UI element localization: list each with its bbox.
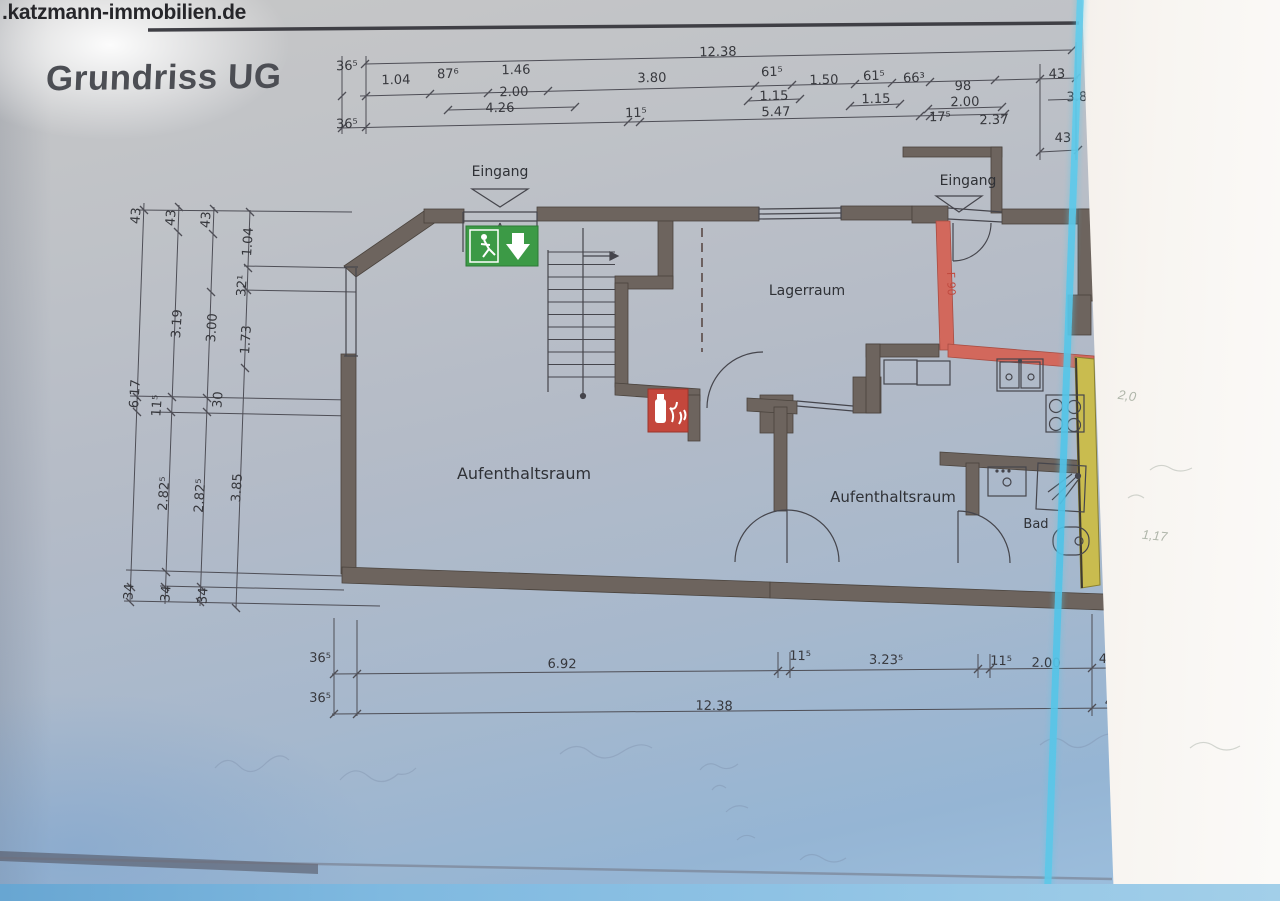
fire-rating-label: F 90 bbox=[944, 272, 958, 296]
dimension-label: 1.50 bbox=[809, 73, 838, 89]
dimension-label: 12.38 bbox=[695, 699, 732, 715]
room-label: Aufenthaltsraum bbox=[457, 464, 591, 483]
room-label: Lagerraum bbox=[769, 283, 845, 299]
dimension-label: 4.26 bbox=[485, 101, 514, 117]
dimension-label: 5.47 bbox=[761, 105, 790, 121]
dimension-label: 17⁵ bbox=[929, 110, 951, 125]
dimension-label: 43 bbox=[1054, 131, 1071, 146]
sheet-top-edge bbox=[148, 23, 1079, 30]
dimension-label: 6.92 bbox=[547, 657, 576, 673]
entrance-marker-icon bbox=[472, 189, 528, 207]
thin-lines-layer bbox=[344, 189, 1109, 563]
dimension-label: 3.00 bbox=[204, 313, 221, 343]
dimension-label: 3.80 bbox=[637, 71, 666, 87]
scanned-floor-plan-page: F 90 12.3836⁵1.0487⁶1.463.8061⁵1.5061⁵66… bbox=[0, 0, 1280, 901]
dimension-label: 61⁵ bbox=[761, 65, 783, 80]
dimension-label: 43 bbox=[128, 207, 144, 225]
dimension-label: 36⁵ bbox=[336, 117, 358, 132]
dimension-label: 36⁵ bbox=[309, 691, 331, 706]
dimension-label: 98 bbox=[954, 79, 971, 94]
dimension-label: 11⁵ bbox=[990, 654, 1012, 669]
dimension-label: 11⁵ bbox=[789, 649, 811, 664]
dimension-label: 43 bbox=[163, 209, 179, 227]
paper-bottom-edge bbox=[0, 858, 1112, 879]
handwritten-note: 1,17 bbox=[1141, 527, 1168, 545]
dimension-label: 1.04 bbox=[381, 73, 410, 89]
scan-bottom-strip bbox=[0, 884, 1280, 901]
walls-layer bbox=[341, 147, 1104, 610]
dimension-label: 2.00 bbox=[499, 85, 528, 101]
dimension-label: 2.00 bbox=[950, 95, 979, 111]
dimension-label: 1.73 bbox=[238, 325, 255, 355]
dimension-label: 11⁵ bbox=[625, 106, 647, 121]
dimension-label: 2.82⁵ bbox=[192, 478, 209, 513]
dimension-label: 3.23⁵ bbox=[869, 653, 903, 669]
dimension-label: 2.37 bbox=[979, 113, 1008, 129]
page-title: Grundriss UG bbox=[45, 57, 282, 99]
dimension-label: 34 bbox=[158, 585, 174, 603]
room-label: Eingang bbox=[940, 173, 997, 189]
dimension-label: 30 bbox=[210, 391, 226, 409]
room-divider-wall bbox=[774, 407, 787, 511]
emergency-exit-icon bbox=[466, 226, 538, 266]
room-label: Bad bbox=[1023, 517, 1048, 532]
dimension-label: 43 bbox=[198, 211, 214, 229]
dimension-label: 6.17 bbox=[127, 379, 144, 409]
dimension-label: 87⁶ bbox=[437, 67, 459, 82]
watermark: .katzmann-immobilien.de bbox=[2, 1, 246, 25]
dimension-label: 12.38 bbox=[699, 45, 737, 61]
dimension-label: 34 bbox=[121, 583, 137, 601]
dimension-label: 1.15 bbox=[861, 92, 890, 108]
dimension-label: 1.15 bbox=[759, 89, 788, 105]
dimension-label: 61⁵ bbox=[863, 69, 885, 84]
dimension-label: 66³ bbox=[903, 71, 925, 86]
pencil-scribbles bbox=[215, 734, 1144, 862]
fire-extinguisher-icon bbox=[648, 389, 688, 432]
dimension-label: 36⁵ bbox=[309, 651, 331, 666]
dimension-label: 1.46 bbox=[501, 63, 530, 79]
dimension-label: 43 bbox=[1048, 67, 1065, 82]
bottom-wall-left bbox=[342, 567, 770, 598]
bath-wall bbox=[940, 452, 1090, 474]
room-label: Eingang bbox=[472, 164, 529, 180]
dimension-label: 36⁵ bbox=[336, 59, 358, 74]
dimension-label: 3.19 bbox=[169, 309, 186, 339]
bottom-dimension-labels: 36⁵6.9211⁵3.23⁵11⁵2.004336⁵12.3843 bbox=[309, 649, 1121, 715]
dimension-label: 3.85 bbox=[229, 473, 246, 503]
dimension-label: 11⁵ bbox=[149, 394, 165, 417]
top-dimension-labels: 12.3836⁵1.0487⁶1.463.8061⁵1.5061⁵66³9843… bbox=[336, 45, 1088, 147]
room-label: Aufenthaltsraum bbox=[830, 488, 956, 506]
dimension-label: 2.82⁵ bbox=[156, 476, 173, 511]
handwritten-note: 2,0 bbox=[1117, 387, 1137, 404]
dimension-label: 34 bbox=[195, 587, 211, 605]
dimension-label: 32¹ bbox=[234, 274, 250, 297]
dimension-label: 1.04 bbox=[240, 227, 257, 257]
